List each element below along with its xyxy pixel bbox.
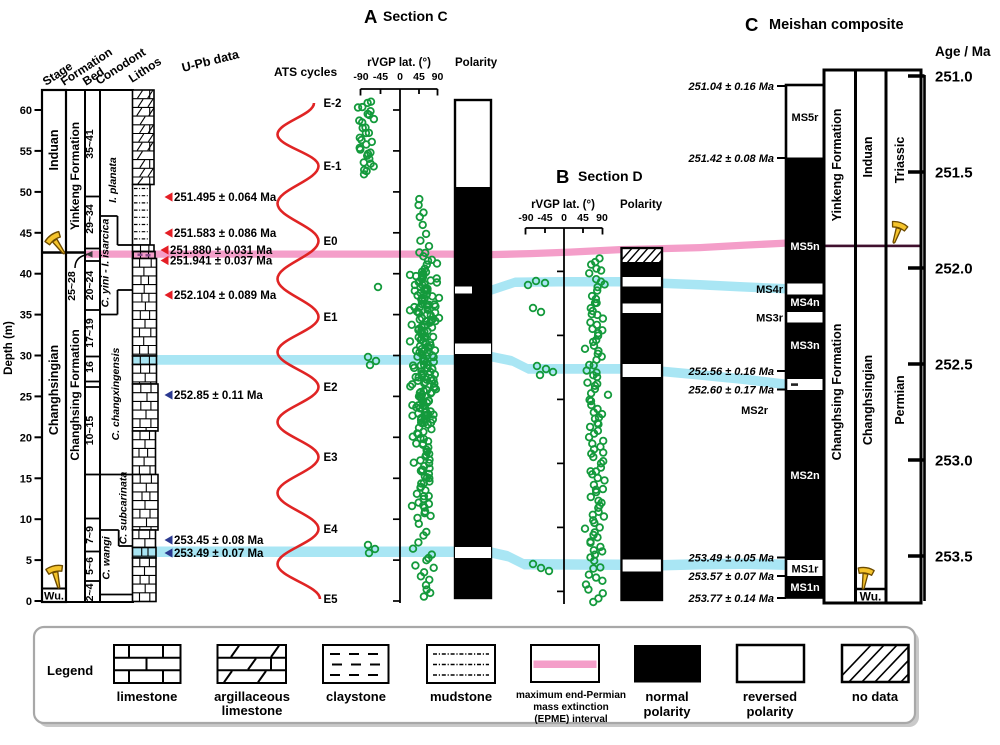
svg-text:0: 0 — [397, 71, 403, 83]
svg-text:252.5: 252.5 — [935, 357, 973, 374]
svg-text:251.0: 251.0 — [935, 69, 973, 86]
svg-text:Yinkeng Formation: Yinkeng Formation — [68, 122, 82, 230]
svg-text:MS3n: MS3n — [790, 340, 820, 352]
svg-text:25~28: 25~28 — [66, 271, 78, 301]
svg-text:Section D: Section D — [578, 168, 643, 184]
svg-text:C. yini - I. isarcica: C. yini - I. isarcica — [100, 218, 112, 307]
svg-text:no data: no data — [852, 689, 899, 704]
svg-text:Meishan composite: Meishan composite — [769, 17, 904, 33]
svg-text:25: 25 — [20, 391, 32, 403]
svg-text:-90: -90 — [353, 71, 368, 83]
svg-text:252.56 ± 0.16 Ma: 252.56 ± 0.16 Ma — [687, 366, 774, 378]
svg-text:253.45 ± 0.08 Ma: 253.45 ± 0.08 Ma — [174, 535, 264, 547]
svg-text:Wu.: Wu. — [860, 590, 882, 604]
svg-text:253.57 ± 0.07 Ma: 253.57 ± 0.07 Ma — [687, 571, 774, 583]
svg-text:29~34: 29~34 — [84, 204, 96, 234]
svg-text:10: 10 — [20, 514, 32, 526]
svg-text:C. changxingensis: C. changxingensis — [110, 347, 122, 440]
svg-text:40: 40 — [20, 269, 32, 281]
svg-text:5~6: 5~6 — [84, 557, 96, 575]
svg-text:20~24: 20~24 — [84, 271, 96, 301]
svg-text:45: 45 — [413, 71, 425, 83]
svg-text:5: 5 — [26, 555, 32, 567]
svg-text:Changhsing Formation: Changhsing Formation — [68, 329, 82, 460]
svg-text:16: 16 — [84, 361, 96, 373]
svg-text:2~4: 2~4 — [84, 583, 96, 601]
svg-text:B: B — [556, 166, 569, 187]
svg-text:limestone: limestone — [222, 703, 283, 718]
svg-text:MS5r: MS5r — [792, 112, 820, 124]
svg-text:E3: E3 — [324, 452, 338, 464]
svg-text:Induan: Induan — [861, 137, 875, 178]
svg-text:251.583 ± 0.086 Ma: 251.583 ± 0.086 Ma — [174, 228, 277, 240]
svg-text:rVGP lat. (°): rVGP lat. (°) — [531, 199, 595, 211]
svg-text:argillaceous: argillaceous — [214, 689, 290, 704]
svg-text:mass extinction: mass extinction — [533, 702, 609, 713]
svg-text:0: 0 — [561, 212, 567, 224]
svg-text:20: 20 — [20, 432, 32, 444]
svg-text:MS1r: MS1r — [792, 564, 820, 576]
svg-text:E5: E5 — [324, 594, 339, 606]
svg-text:MS3r: MS3r — [756, 313, 784, 325]
svg-text:reversed: reversed — [743, 689, 797, 704]
svg-text:A: A — [364, 6, 377, 27]
svg-text:15: 15 — [20, 473, 32, 485]
svg-text:Changhsing Formation: Changhsing Formation — [830, 324, 844, 461]
svg-text:Depth (m): Depth (m) — [3, 321, 15, 375]
svg-text:Changhsingian: Changhsingian — [47, 345, 61, 435]
svg-text:252.85 ± 0.11 Ma: 252.85 ± 0.11 Ma — [174, 390, 263, 402]
svg-text:MS5n: MS5n — [790, 241, 820, 253]
svg-text:(EPME) interval: (EPME) interval — [534, 714, 608, 725]
svg-text:30: 30 — [20, 351, 32, 363]
svg-text:limestone: limestone — [117, 689, 178, 704]
svg-text:MS4n: MS4n — [790, 297, 820, 309]
svg-text:-90: -90 — [518, 212, 533, 224]
svg-text:251.941 ± 0.037 Ma: 251.941 ± 0.037 Ma — [170, 256, 273, 268]
svg-text:C. subcarinata: C. subcarinata — [118, 472, 130, 545]
svg-text:7~9: 7~9 — [84, 526, 96, 544]
svg-text:45: 45 — [577, 212, 589, 224]
svg-text:E-2: E-2 — [324, 98, 342, 110]
svg-text:MS4r: MS4r — [756, 284, 784, 296]
svg-text:normal: normal — [645, 689, 688, 704]
svg-text:polarity: polarity — [644, 704, 692, 719]
svg-text:60: 60 — [20, 105, 32, 117]
svg-text:Permian: Permian — [893, 375, 907, 424]
svg-text:251.495 ± 0.064 Ma: 251.495 ± 0.064 Ma — [174, 192, 277, 204]
svg-text:45: 45 — [20, 228, 32, 240]
svg-text:E2: E2 — [324, 382, 338, 394]
svg-text:Age / Ma: Age / Ma — [935, 44, 991, 59]
svg-text:maximum end-Permian: maximum end-Permian — [516, 690, 626, 701]
svg-text:252.0: 252.0 — [935, 261, 973, 278]
svg-text:Triassic: Triassic — [893, 137, 907, 184]
svg-text:253.0: 253.0 — [935, 453, 973, 470]
svg-text:50: 50 — [20, 187, 32, 199]
svg-text:E0: E0 — [324, 236, 338, 248]
svg-text:C: C — [745, 14, 758, 35]
svg-text:-45: -45 — [537, 212, 552, 224]
svg-text:252.60 ± 0.17 Ma: 252.60 ± 0.17 Ma — [687, 384, 774, 396]
svg-text:Polarity: Polarity — [455, 57, 498, 69]
svg-text:252.104 ± 0.089 Ma: 252.104 ± 0.089 Ma — [174, 290, 277, 302]
svg-text:E1: E1 — [324, 312, 339, 324]
svg-text:251.5: 251.5 — [935, 165, 973, 182]
svg-text:Yinkeng Formation: Yinkeng Formation — [830, 109, 844, 222]
svg-text:251.04 ± 0.16 Ma: 251.04 ± 0.16 Ma — [687, 81, 774, 93]
svg-text:claystone: claystone — [326, 689, 386, 704]
svg-text:E4: E4 — [324, 524, 339, 536]
svg-text:MS1n: MS1n — [790, 582, 820, 594]
svg-text:Changhsingian: Changhsingian — [861, 355, 875, 445]
svg-text:253.49 ± 0.07 Ma: 253.49 ± 0.07 Ma — [174, 548, 264, 560]
svg-text:mudstone: mudstone — [430, 689, 492, 704]
svg-text:251.42 ± 0.08 Ma: 251.42 ± 0.08 Ma — [687, 153, 774, 165]
svg-text:Wu.: Wu. — [44, 591, 64, 603]
svg-text:I. planata: I. planata — [107, 157, 119, 203]
svg-text:0: 0 — [26, 596, 32, 608]
svg-text:E-1: E-1 — [324, 161, 343, 173]
svg-text:Section C: Section C — [383, 8, 448, 24]
svg-text:MS2n: MS2n — [790, 470, 820, 482]
svg-text:Polarity: Polarity — [620, 199, 663, 211]
svg-text:35~41: 35~41 — [84, 129, 96, 159]
svg-text:253.77 ± 0.14 Ma: 253.77 ± 0.14 Ma — [687, 593, 774, 605]
svg-text:ATS cycles: ATS cycles — [274, 65, 337, 79]
svg-text:10~15: 10~15 — [84, 416, 96, 446]
svg-text:90: 90 — [432, 71, 444, 83]
svg-text:90: 90 — [596, 212, 608, 224]
svg-text:rVGP lat. (°): rVGP lat. (°) — [367, 57, 431, 69]
svg-text:253.49 ± 0.05 Ma: 253.49 ± 0.05 Ma — [687, 552, 774, 564]
svg-text:35: 35 — [20, 310, 32, 322]
svg-text:55: 55 — [20, 146, 32, 158]
svg-text:Legend: Legend — [47, 663, 93, 678]
svg-text:Induan: Induan — [47, 130, 61, 171]
svg-text:C. wangi: C. wangi — [101, 535, 113, 579]
svg-text:polarity: polarity — [747, 704, 795, 719]
svg-text:MS2r: MS2r — [741, 405, 769, 417]
svg-text:253.5: 253.5 — [935, 549, 973, 566]
svg-text:-45: -45 — [373, 71, 388, 83]
svg-text:17~19: 17~19 — [84, 318, 96, 348]
